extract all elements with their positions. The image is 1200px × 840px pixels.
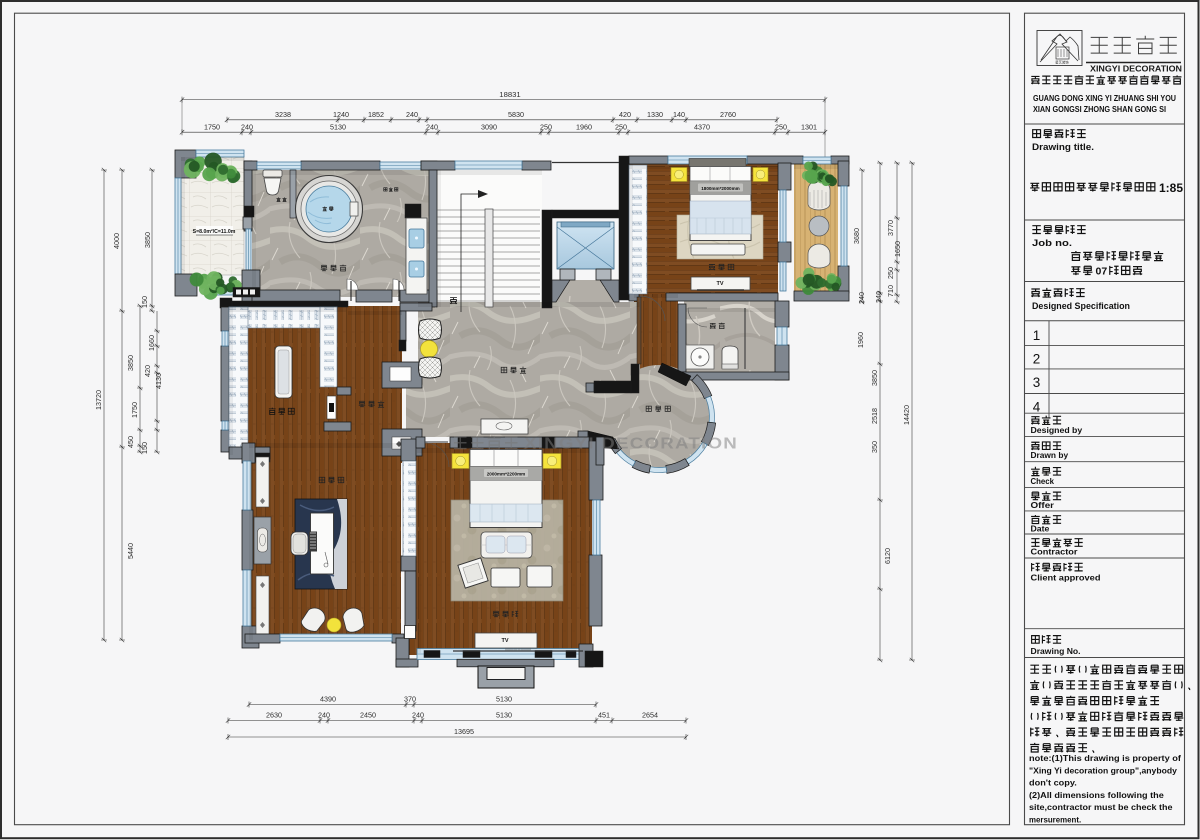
svg-text:5130: 5130 — [496, 695, 512, 704]
svg-text:2760: 2760 — [720, 110, 736, 119]
svg-text:3850: 3850 — [870, 370, 879, 386]
svg-text:1852: 1852 — [368, 110, 384, 119]
svg-text:250: 250 — [615, 122, 627, 131]
svg-text:Drawn by: Drawn by — [1031, 451, 1069, 460]
svg-text:420: 420 — [619, 110, 631, 119]
svg-text:240: 240 — [412, 711, 424, 720]
svg-text:Job no.: Job no. — [1032, 238, 1072, 248]
svg-text:250: 250 — [540, 122, 552, 131]
svg-text:Date: Date — [1031, 525, 1050, 534]
svg-text:3: 3 — [1033, 375, 1041, 390]
svg-text:240: 240 — [406, 110, 418, 119]
svg-text:13720: 13720 — [94, 390, 103, 410]
svg-text:Offer: Offer — [1031, 501, 1055, 510]
svg-text:1960: 1960 — [856, 332, 865, 348]
svg-text:XIAN GONGSI ZHONG SHAN GONG SI: XIAN GONGSI ZHONG SHAN GONG SI — [1033, 105, 1166, 114]
svg-text:1800mm*2000mm: 1800mm*2000mm — [701, 186, 740, 191]
svg-text:Designed Specification: Designed Specification — [1032, 301, 1130, 311]
svg-text:5440: 5440 — [126, 543, 135, 559]
svg-text:site,contractor must be check: site,contractor must be check the — [1029, 803, 1173, 812]
svg-text:Drawing No.: Drawing No. — [1031, 647, 1081, 656]
svg-text:1650: 1650 — [893, 241, 902, 257]
svg-text:(2)All dimensions following th: (2)All dimensions following the — [1029, 791, 1165, 800]
svg-text:3850: 3850 — [126, 355, 135, 371]
svg-text:Contractor: Contractor — [1031, 548, 1079, 557]
svg-text:350: 350 — [870, 441, 879, 453]
svg-text:1301: 1301 — [801, 122, 817, 131]
svg-text:XINGYI DECORATION: XINGYI DECORATION — [524, 436, 738, 453]
svg-text:18831: 18831 — [499, 90, 520, 99]
svg-text:Check: Check — [1031, 477, 1055, 486]
svg-text:4000: 4000 — [112, 233, 121, 249]
svg-text:2654: 2654 — [642, 711, 658, 720]
svg-text:240: 240 — [318, 711, 330, 720]
svg-text:|||||||||||||||||||||||||: ||||||||||||||||||||||||| — [505, 646, 531, 651]
svg-text:1960: 1960 — [576, 122, 592, 131]
svg-text:1330: 1330 — [647, 110, 663, 119]
svg-text:4130: 4130 — [154, 373, 163, 389]
svg-text:370: 370 — [404, 695, 416, 704]
svg-text:1: 1 — [1033, 328, 1041, 343]
svg-text:1660: 1660 — [147, 335, 156, 351]
svg-text:240: 240 — [857, 292, 866, 304]
svg-text:5830: 5830 — [508, 110, 524, 119]
svg-text:250: 250 — [775, 122, 787, 131]
svg-text:240: 240 — [874, 291, 883, 303]
svg-text:240: 240 — [426, 122, 438, 131]
svg-text:3770: 3770 — [886, 220, 895, 236]
svg-text:XINGYI DECORATION: XINGYI DECORATION — [1090, 65, 1182, 74]
svg-text:2: 2 — [1033, 352, 1041, 367]
svg-text:3238: 3238 — [275, 110, 291, 119]
svg-text:3090: 3090 — [481, 122, 497, 131]
svg-text:3850: 3850 — [143, 232, 152, 248]
svg-text:1750: 1750 — [130, 402, 139, 418]
svg-text:710: 710 — [886, 285, 895, 297]
svg-text:150: 150 — [140, 442, 149, 454]
svg-text:4370: 4370 — [694, 122, 710, 131]
svg-text:2518: 2518 — [870, 408, 879, 424]
svg-text:4: 4 — [1033, 400, 1041, 415]
svg-text:250: 250 — [886, 267, 895, 279]
svg-text:1240: 1240 — [333, 110, 349, 119]
svg-text:2450: 2450 — [360, 711, 376, 720]
svg-text:14420: 14420 — [902, 405, 911, 425]
svg-text:1750: 1750 — [204, 122, 220, 131]
svg-text:1:85: 1:85 — [1159, 181, 1183, 195]
svg-text:Designed by: Designed by — [1031, 426, 1083, 435]
svg-text:2630: 2630 — [266, 711, 282, 720]
svg-text:13695: 13695 — [454, 727, 474, 736]
svg-text:140: 140 — [673, 110, 685, 119]
svg-text:GUANG DONG XING YI ZHUANG SHI: GUANG DONG XING YI ZHUANG SHI YOU — [1033, 94, 1176, 103]
svg-text:星艺装饰: 星艺装饰 — [1055, 60, 1069, 65]
svg-text:note:(1)This drawing is proper: note:(1)This drawing is property of — [1029, 754, 1181, 763]
svg-text:3680: 3680 — [852, 228, 861, 244]
svg-text:don't copy.: don't copy. — [1029, 779, 1077, 788]
svg-text:2000mm*2200mm: 2000mm*2200mm — [487, 472, 526, 477]
svg-text:mersurement.: mersurement. — [1029, 816, 1081, 825]
svg-text:4390: 4390 — [320, 695, 336, 704]
svg-text:240: 240 — [241, 122, 253, 131]
svg-text:Drawing title.: Drawing title. — [1032, 142, 1094, 152]
svg-text:5130: 5130 — [496, 711, 512, 720]
svg-text:450: 450 — [126, 436, 135, 448]
svg-text:150: 150 — [140, 296, 149, 308]
svg-text:6120: 6120 — [883, 548, 892, 564]
svg-text:07: 07 — [1096, 266, 1108, 278]
svg-text:5130: 5130 — [330, 122, 346, 131]
svg-text:420: 420 — [143, 365, 152, 377]
svg-text:"Xing Yi decoration group",any: "Xing Yi decoration group",anybody — [1029, 766, 1178, 775]
svg-text:Client approved: Client approved — [1031, 574, 1101, 583]
svg-text:TV: TV — [501, 638, 508, 644]
svg-text:S=8.0m²/C=11.0m: S=8.0m²/C=11.0m — [193, 229, 236, 235]
svg-text:451: 451 — [598, 711, 610, 720]
svg-text:TV: TV — [716, 281, 723, 287]
